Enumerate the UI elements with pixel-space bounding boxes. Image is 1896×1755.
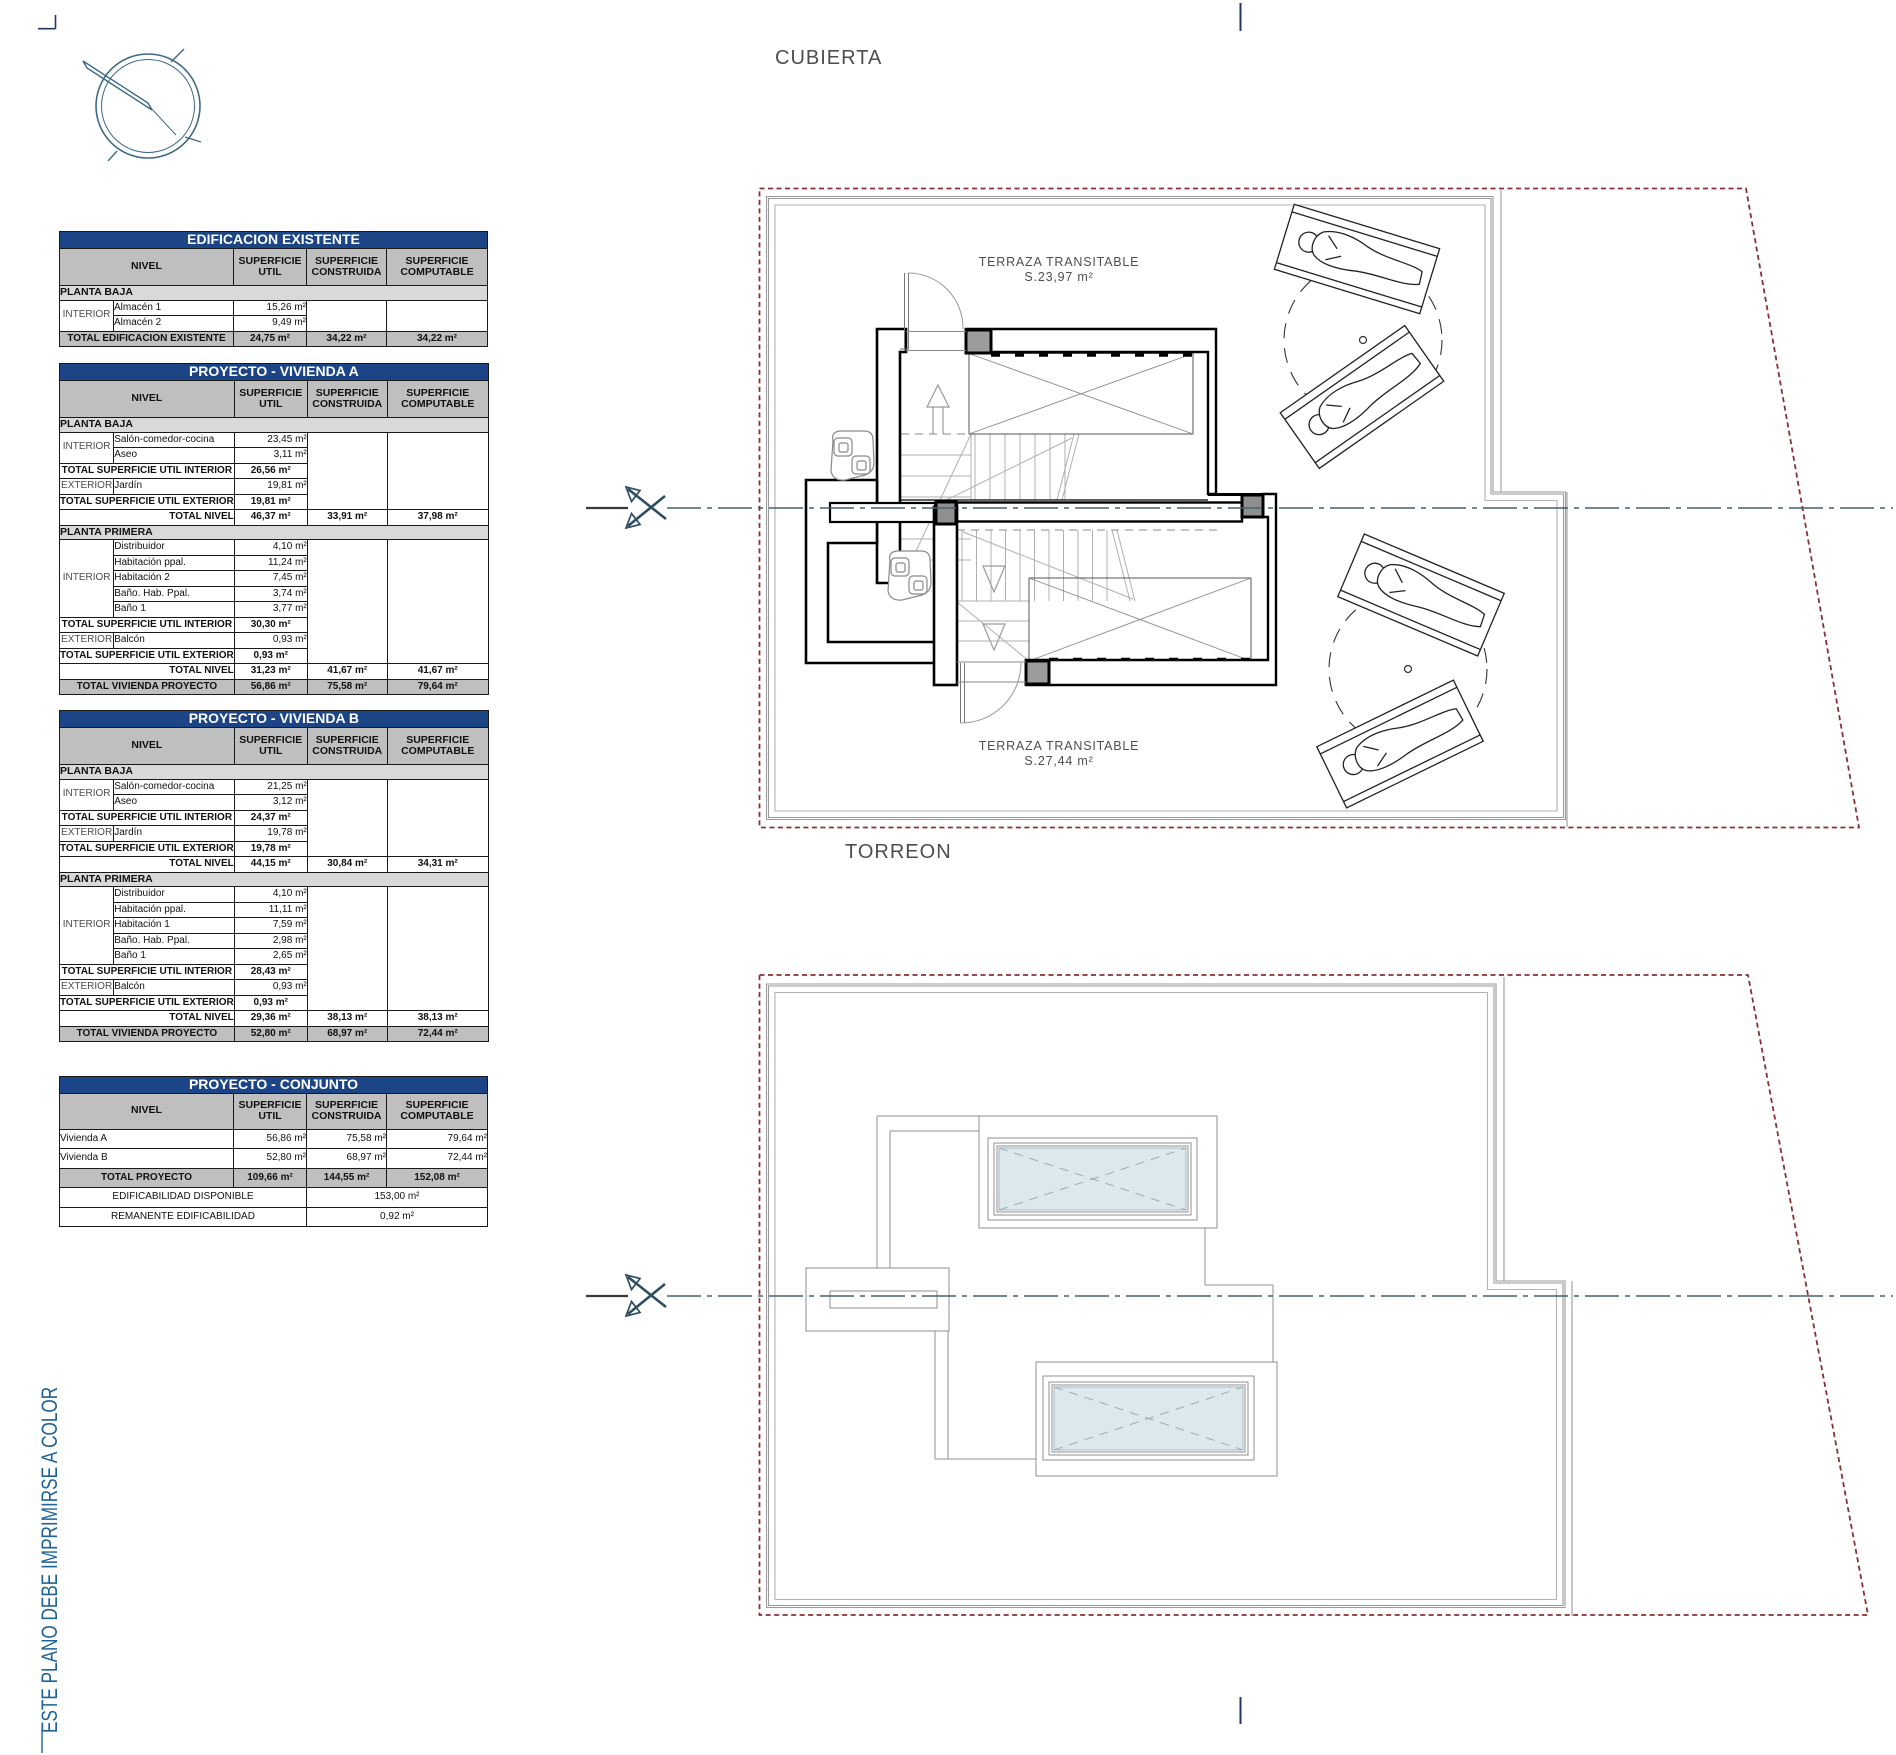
- svg-text:TERRAZA TRANSITABLE: TERRAZA TRANSITABLE: [979, 255, 1140, 269]
- svg-text:CUBIERTA: CUBIERTA: [775, 47, 882, 69]
- svg-text:TORREON: TORREON: [845, 841, 952, 863]
- svg-text:S.27,44 m²: S.27,44 m²: [1024, 754, 1093, 768]
- svg-text:S.23,97 m²: S.23,97 m²: [1024, 270, 1093, 284]
- svg-text:TERRAZA TRANSITABLE: TERRAZA TRANSITABLE: [979, 739, 1140, 753]
